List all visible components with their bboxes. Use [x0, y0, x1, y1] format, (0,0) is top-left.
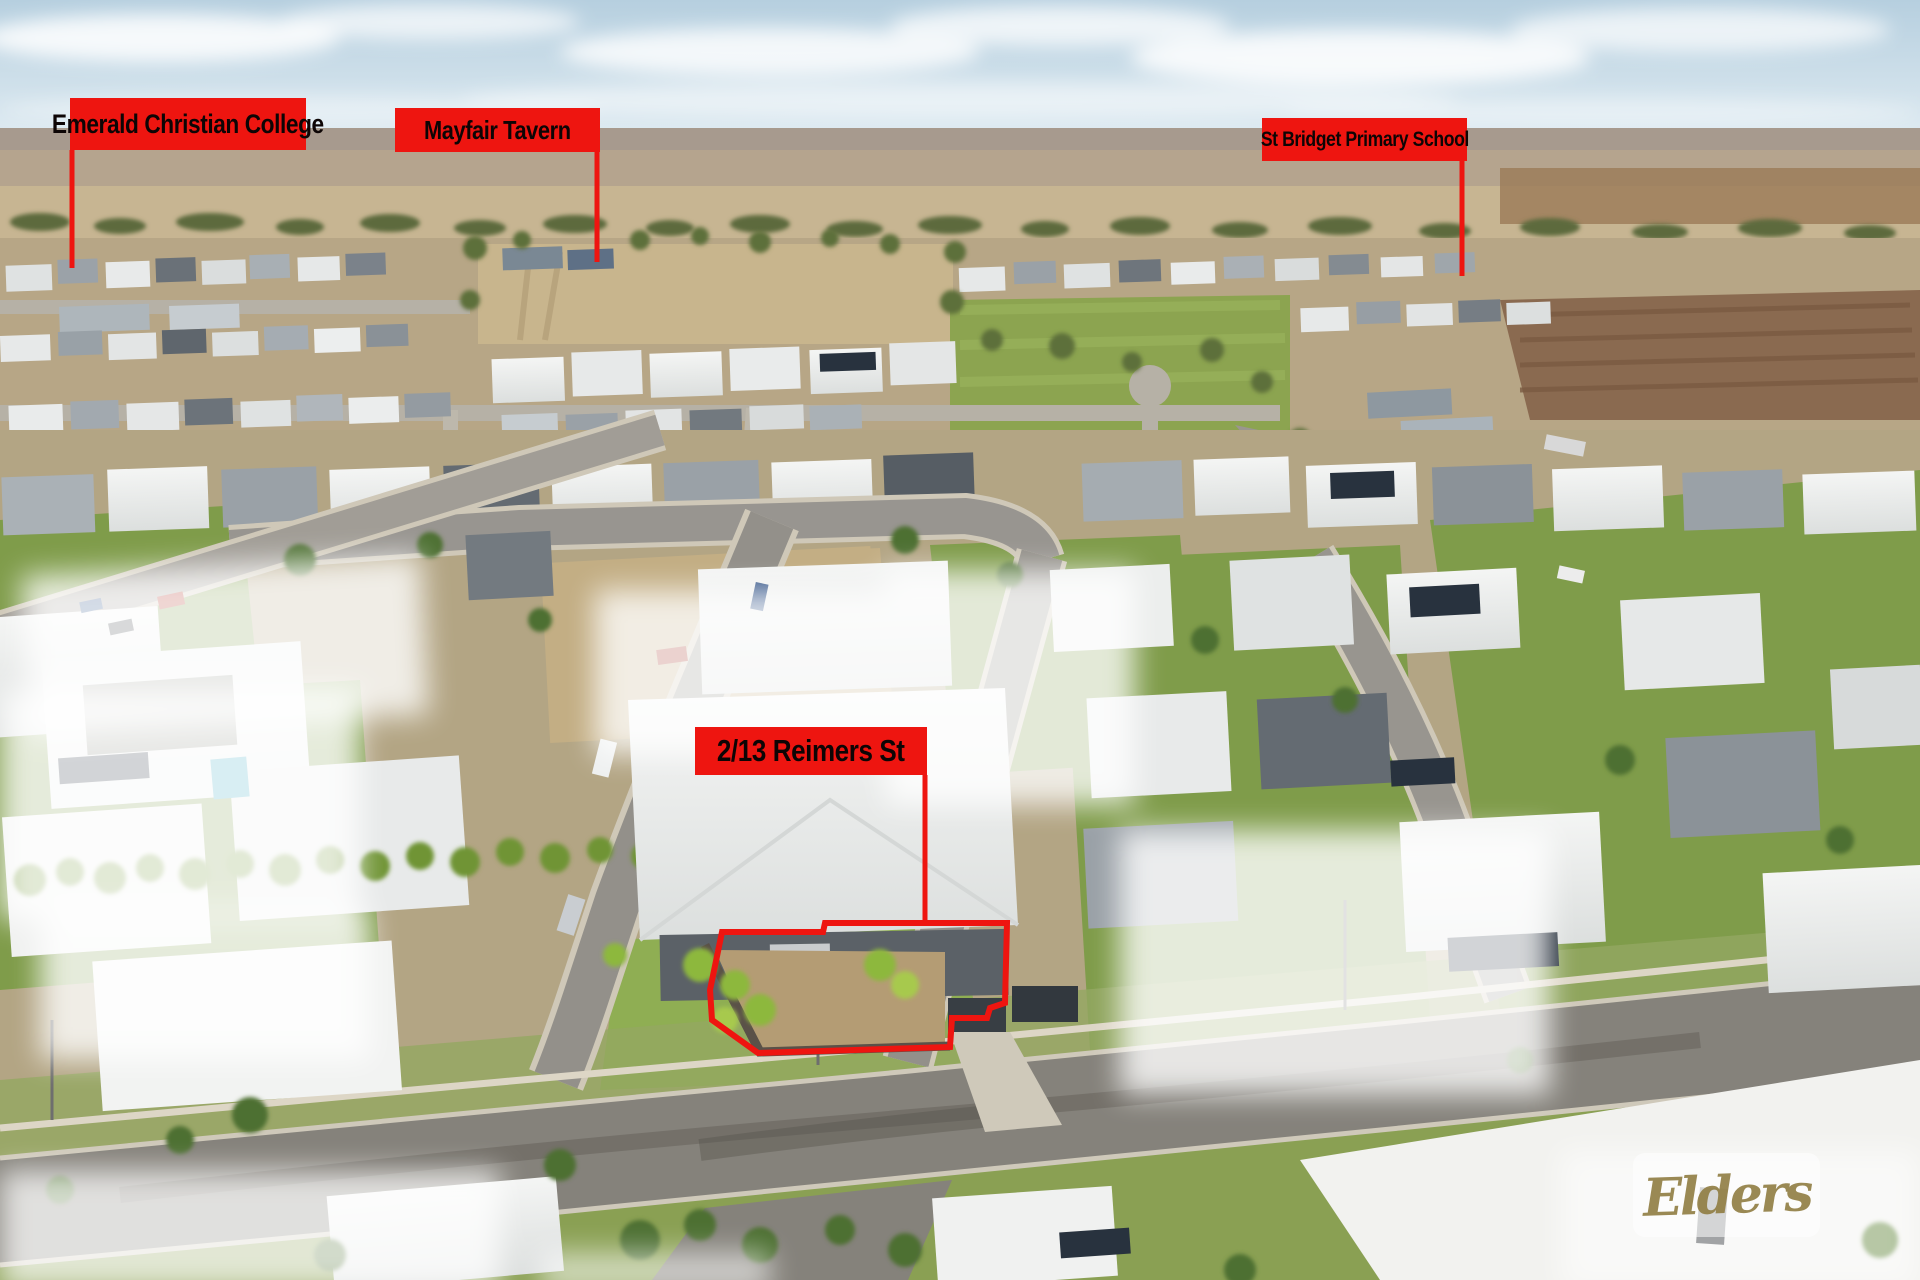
label-emerald-christian-college: Emerald Christian College — [70, 98, 306, 150]
garage-door — [948, 998, 1006, 1032]
aerial-photo: Emerald Christian College Mayfair Tavern… — [0, 0, 1920, 1280]
elders-logo-text: Elders — [1642, 1162, 1812, 1229]
aerial-photo-scene — [0, 0, 1920, 1280]
label-text: 2/13 Reimers St — [717, 733, 905, 769]
label-mayfair-tavern: Mayfair Tavern — [395, 108, 600, 152]
label-text: Mayfair Tavern — [424, 115, 571, 146]
label-st-bridget-primary-school: St Bridget Primary School — [1262, 118, 1467, 161]
label-property-address: 2/13 Reimers St — [695, 727, 927, 775]
label-text: Emerald Christian College — [52, 109, 324, 140]
label-text: St Bridget Primary School — [1260, 128, 1468, 152]
elders-watermark: Elders — [1633, 1153, 1820, 1237]
